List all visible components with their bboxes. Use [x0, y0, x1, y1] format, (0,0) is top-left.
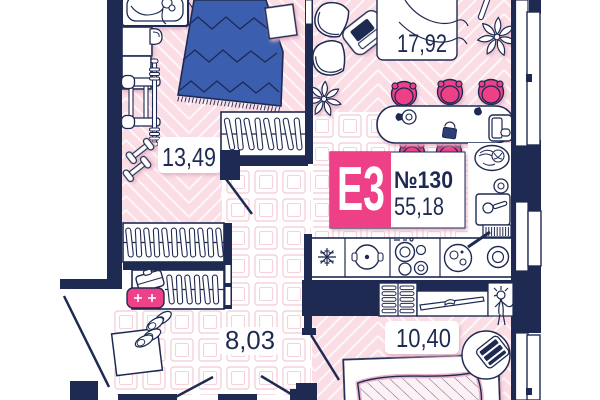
svg-text:55,18: 55,18: [394, 193, 444, 221]
svg-text:17,92: 17,92: [397, 30, 447, 58]
svg-text:№130: №130: [394, 167, 453, 194]
svg-text:10,40: 10,40: [396, 323, 451, 353]
svg-text:13,49: 13,49: [162, 142, 216, 172]
svg-text:E3: E3: [337, 155, 385, 224]
svg-text:8,03: 8,03: [225, 325, 275, 355]
